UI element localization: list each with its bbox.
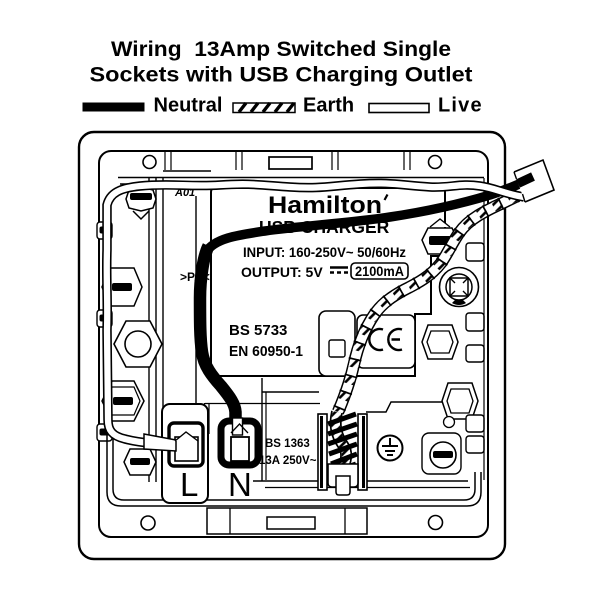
svg-text:INPUT: 160-250V~ 50/60Hz: INPUT: 160-250V~ 50/60Hz (243, 245, 406, 260)
svg-text:N: N (228, 466, 252, 503)
svg-text:13A 250V~: 13A 250V~ (259, 455, 317, 467)
svg-text:BS 5733: BS 5733 (229, 322, 287, 339)
svg-text:EN 60950-1: EN 60950-1 (229, 343, 303, 360)
svg-text:L: L (180, 466, 198, 503)
svg-text:Earth: Earth (303, 95, 354, 117)
svg-text:2100mA: 2100mA (355, 264, 404, 279)
svg-text:Hamilton: Hamilton (268, 192, 382, 219)
svg-text:BS 1363: BS 1363 (265, 438, 310, 450)
svg-text:Wiring 13Amp Switched Single: Wiring 13Amp Switched Single (111, 38, 451, 61)
svg-text:Neutral: Neutral (154, 95, 223, 117)
svg-text:OUTPUT: 5V: OUTPUT: 5V (241, 264, 323, 280)
svg-text:Sockets with USB Charging Outl: Sockets with USB Charging Outlet (90, 64, 473, 87)
svg-text:Live: Live (438, 95, 483, 117)
